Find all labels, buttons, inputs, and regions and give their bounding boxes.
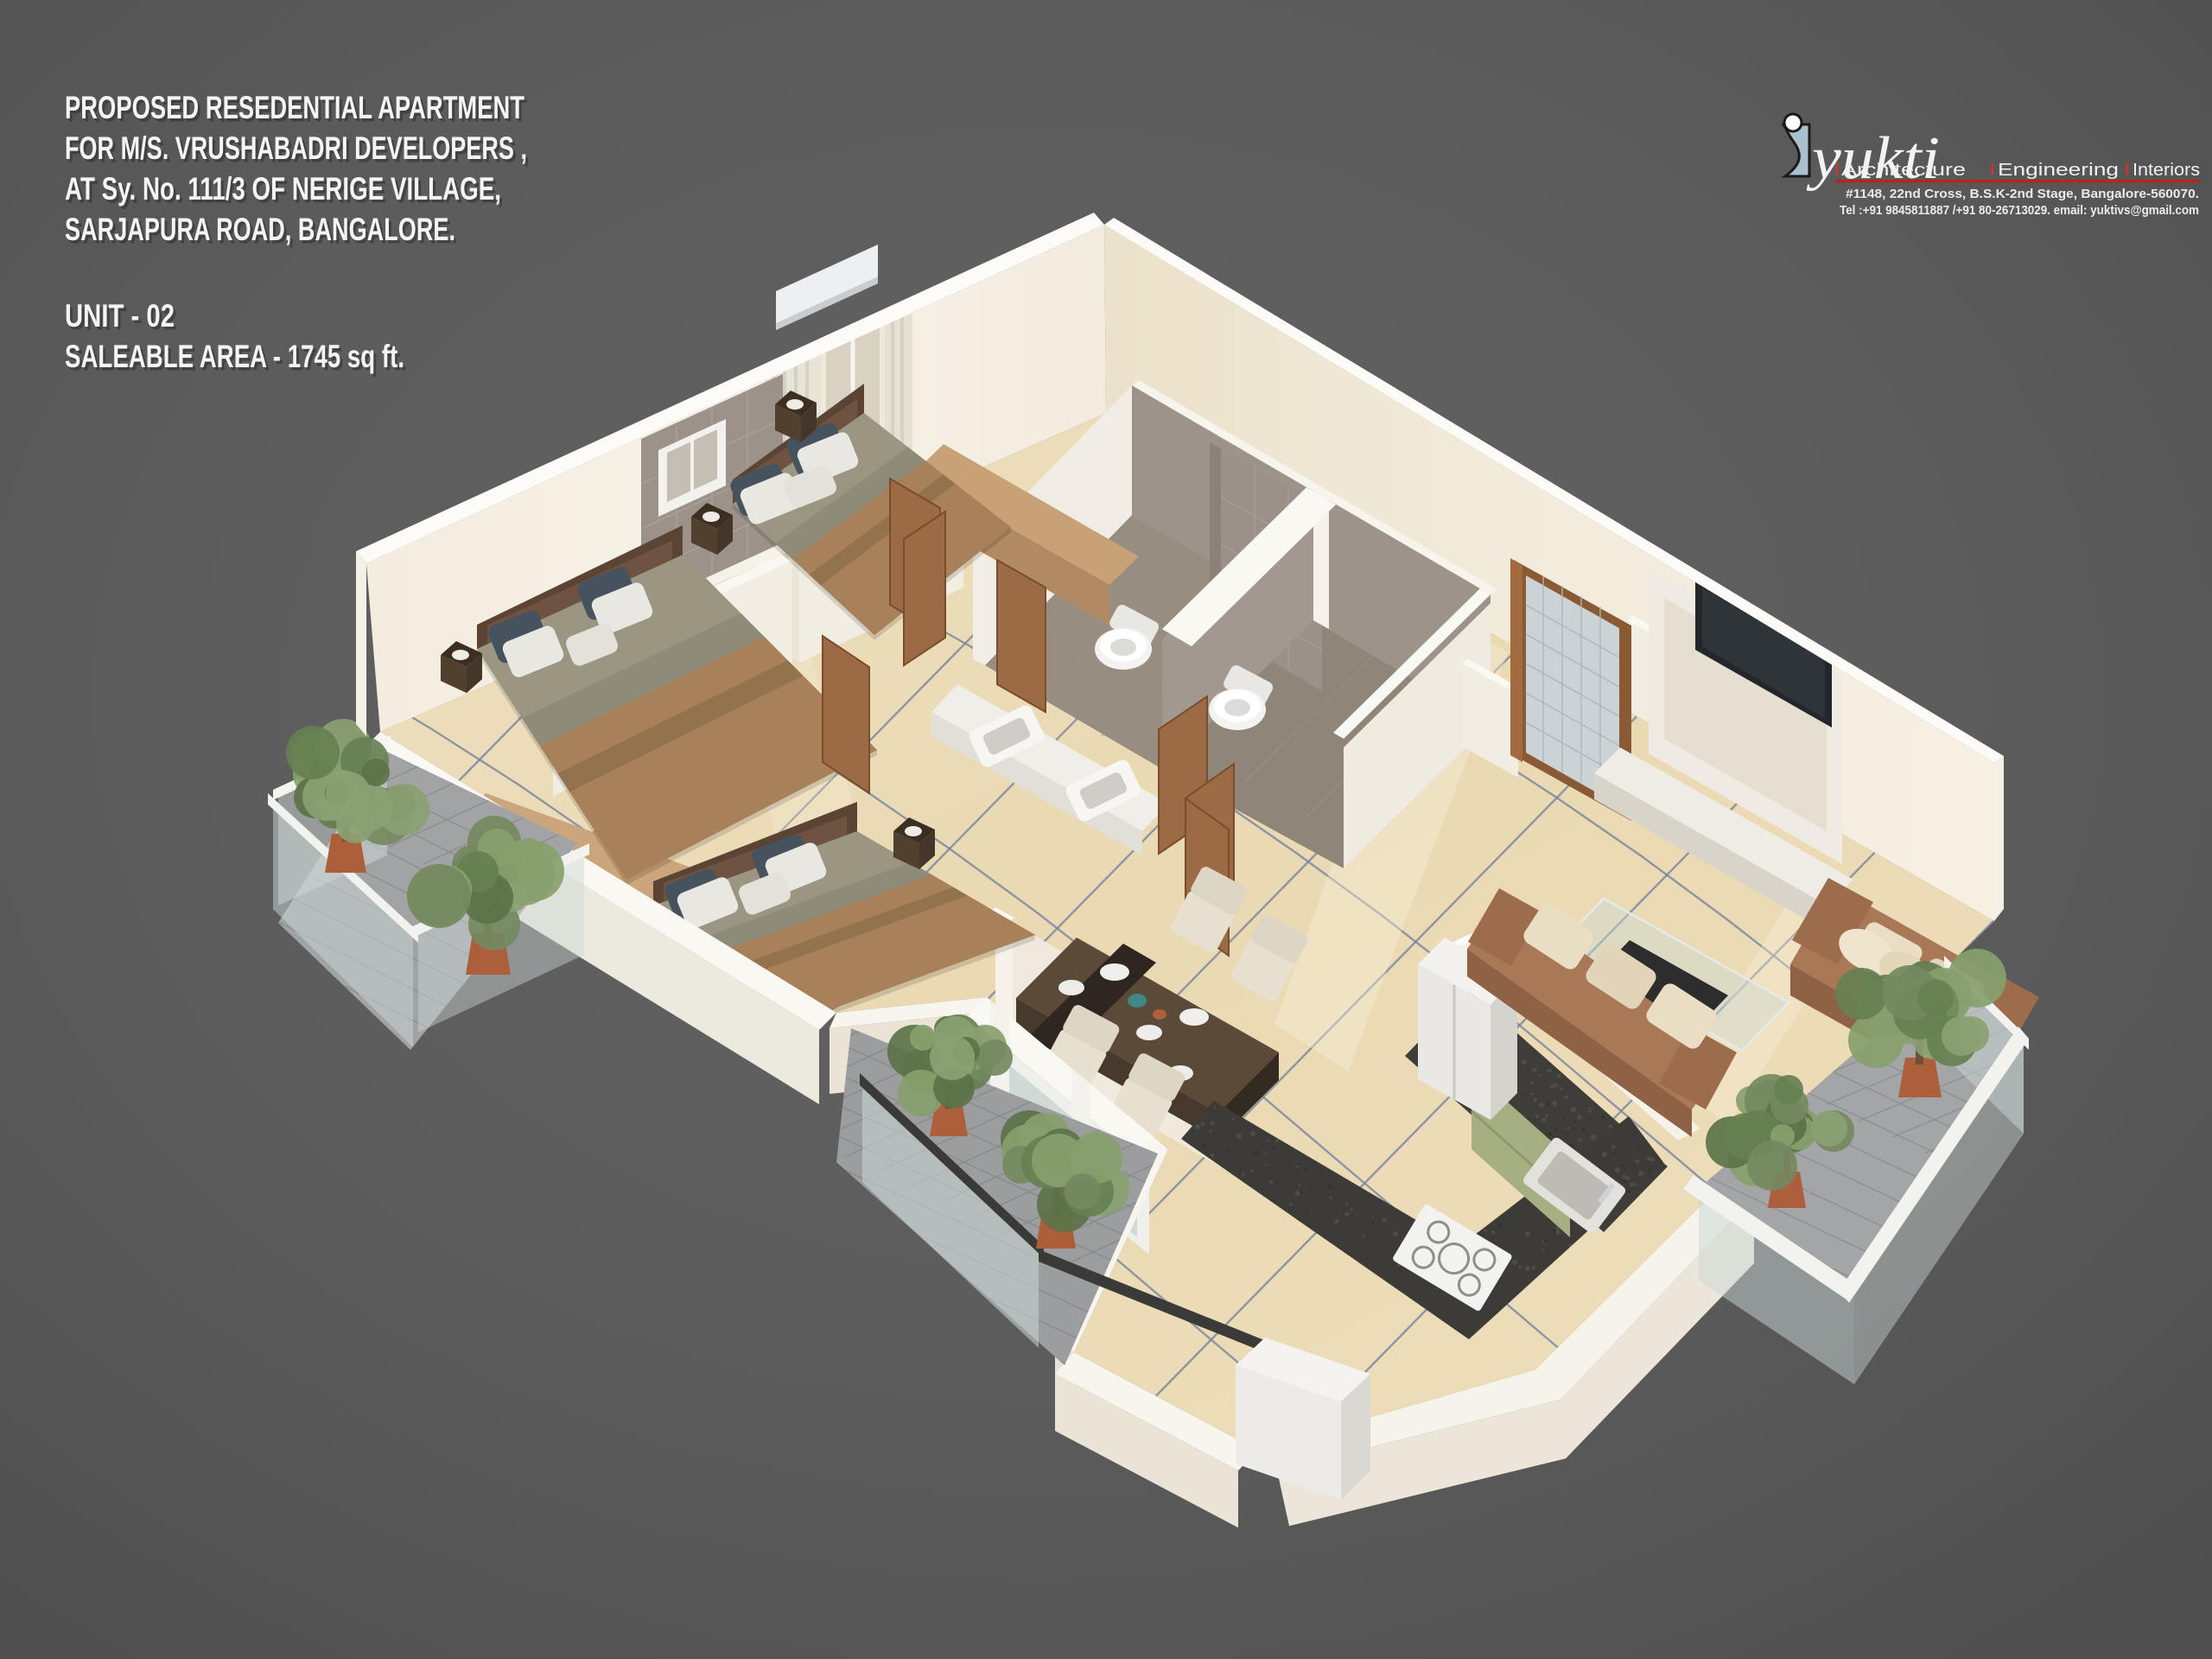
svg-text:FOR M/S. VRUSHABADRI DEVELOPER: FOR M/S. VRUSHABADRI DEVELOPERS , <box>65 130 527 166</box>
svg-text:I: I <box>2125 161 2130 180</box>
svg-text:Engineering: Engineering <box>1998 161 2119 180</box>
svg-text:Architecture: Architecture <box>1841 161 1966 180</box>
svg-text:I: I <box>1990 161 1995 180</box>
svg-text:SARJAPURA ROAD, BANGALORE.: SARJAPURA ROAD, BANGALORE. <box>65 212 455 247</box>
svg-text:PROPOSED RESEDENTIAL APARTMENT: PROPOSED RESEDENTIAL APARTMENT <box>65 90 524 125</box>
svg-text:AT Sy. No. 111/3 OF NERIGE VIL: AT Sy. No. 111/3 OF NERIGE VILLAGE, <box>65 171 501 207</box>
svg-text:#1148, 22nd Cross, B.S.K-2n: #1148, 22nd Cross, B.S.K-2nd Stage, Bang… <box>1846 187 2199 201</box>
svg-text:SALEABLE AREA - 1745 sq ft.: SALEABLE AREA - 1745 sq ft. <box>65 339 404 374</box>
svg-text:UNIT - 02: UNIT - 02 <box>65 298 175 334</box>
svg-text:I: I <box>1834 161 1840 180</box>
svg-text:Tel :+91 9845811887 /+91 80-26: Tel :+91 9845811887 /+91 80-26713029. em… <box>1840 203 2199 218</box>
svg-text:Interiors: Interiors <box>2133 161 2200 180</box>
